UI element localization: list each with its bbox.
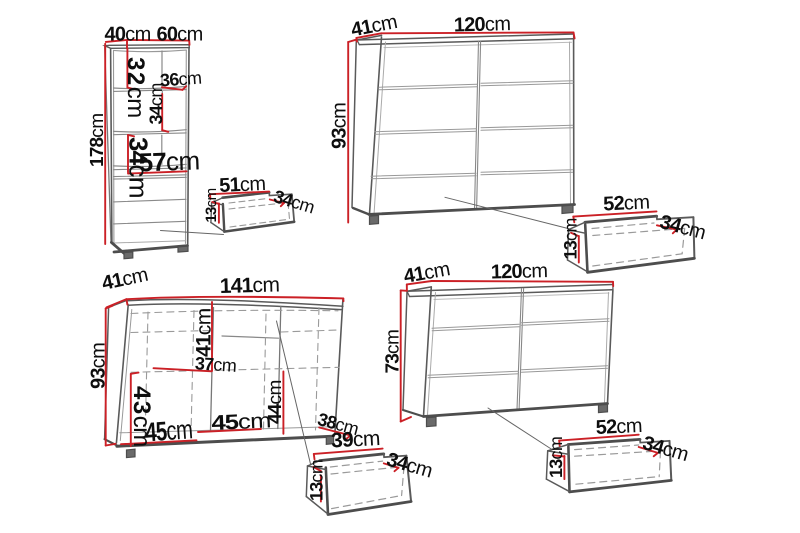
svg-text:93cm: 93cm bbox=[329, 103, 351, 149]
svg-text:52cm: 52cm bbox=[603, 191, 650, 215]
svg-text:39cm: 39cm bbox=[331, 427, 381, 453]
svg-text:60cm: 60cm bbox=[157, 23, 203, 45]
svg-text:120cm: 120cm bbox=[454, 13, 511, 36]
svg-text:51cm: 51cm bbox=[219, 173, 266, 197]
svg-text:34cm: 34cm bbox=[146, 83, 166, 124]
svg-text:37cm: 37cm bbox=[194, 353, 237, 375]
svg-text:41cm: 41cm bbox=[193, 308, 216, 357]
svg-text:13cm: 13cm bbox=[203, 188, 220, 222]
svg-text:73cm: 73cm bbox=[383, 330, 404, 374]
svg-text:52cm: 52cm bbox=[595, 415, 642, 439]
svg-text:178cm: 178cm bbox=[87, 113, 108, 167]
svg-text:57cm: 57cm bbox=[138, 145, 200, 177]
svg-text:45cm: 45cm bbox=[211, 409, 271, 435]
svg-text:141cm: 141cm bbox=[220, 273, 280, 298]
svg-text:32cm: 32cm bbox=[122, 57, 149, 118]
svg-text:45cm: 45cm bbox=[144, 414, 193, 448]
svg-text:13cm: 13cm bbox=[561, 218, 581, 259]
svg-text:40cm: 40cm bbox=[105, 23, 151, 45]
svg-text:13cm: 13cm bbox=[307, 460, 327, 501]
svg-text:93cm: 93cm bbox=[87, 343, 109, 389]
svg-text:120cm: 120cm bbox=[491, 260, 548, 283]
svg-text:13cm: 13cm bbox=[546, 437, 566, 478]
